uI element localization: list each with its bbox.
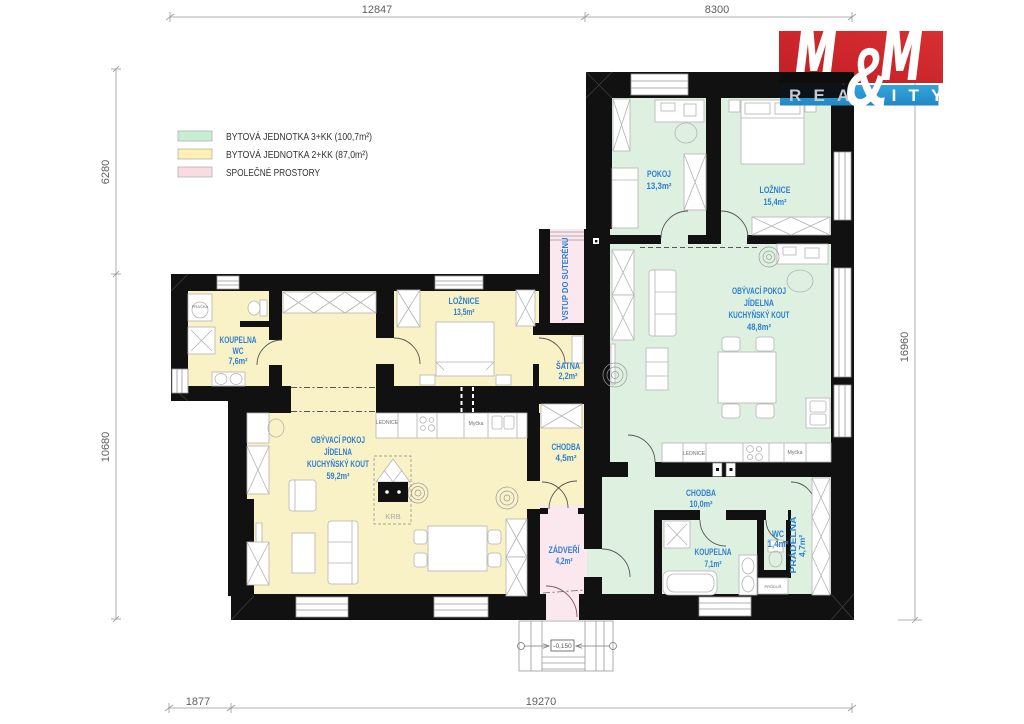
svg-text:&: & [841, 31, 893, 124]
